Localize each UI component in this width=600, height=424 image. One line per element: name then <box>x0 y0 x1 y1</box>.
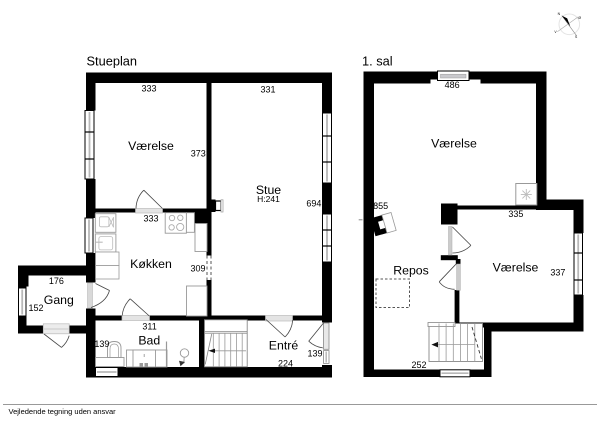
svg-text:Entré: Entré <box>269 339 299 353</box>
svg-text:311: 311 <box>142 322 156 332</box>
svg-text:176: 176 <box>49 276 64 286</box>
svg-text:694: 694 <box>306 199 321 209</box>
svg-text:Repos: Repos <box>393 263 429 277</box>
svg-text:335: 335 <box>508 209 523 219</box>
svg-text:331: 331 <box>260 85 275 95</box>
svg-text:Værelse: Værelse <box>493 261 539 275</box>
svg-text:Værelse: Værelse <box>128 139 174 153</box>
svg-text:H:241: H:241 <box>257 194 280 204</box>
svg-text:337: 337 <box>550 267 565 277</box>
svg-text:Stueplan: Stueplan <box>87 54 138 69</box>
svg-text:855: 855 <box>373 201 388 211</box>
svg-text:333: 333 <box>141 84 156 94</box>
svg-text:224: 224 <box>278 359 293 369</box>
svg-text:Vejledende tegning uden ansvar: Vejledende tegning uden ansvar <box>9 407 117 416</box>
svg-text:Gang: Gang <box>44 293 74 307</box>
svg-text:1. sal: 1. sal <box>362 54 393 69</box>
svg-text:139: 139 <box>307 348 322 358</box>
svg-text:309: 309 <box>190 264 205 274</box>
svg-text:Køkken: Køkken <box>130 257 172 271</box>
svg-text:Ø: Ø <box>578 16 581 20</box>
svg-text:Værelse: Værelse <box>431 136 477 150</box>
svg-text:373: 373 <box>191 148 206 158</box>
svg-text:333: 333 <box>143 213 158 223</box>
svg-text:139: 139 <box>94 339 109 349</box>
svg-text:152: 152 <box>28 303 43 313</box>
svg-text:Bad: Bad <box>138 334 160 348</box>
svg-text:486: 486 <box>445 80 460 90</box>
svg-text:252: 252 <box>411 360 426 370</box>
